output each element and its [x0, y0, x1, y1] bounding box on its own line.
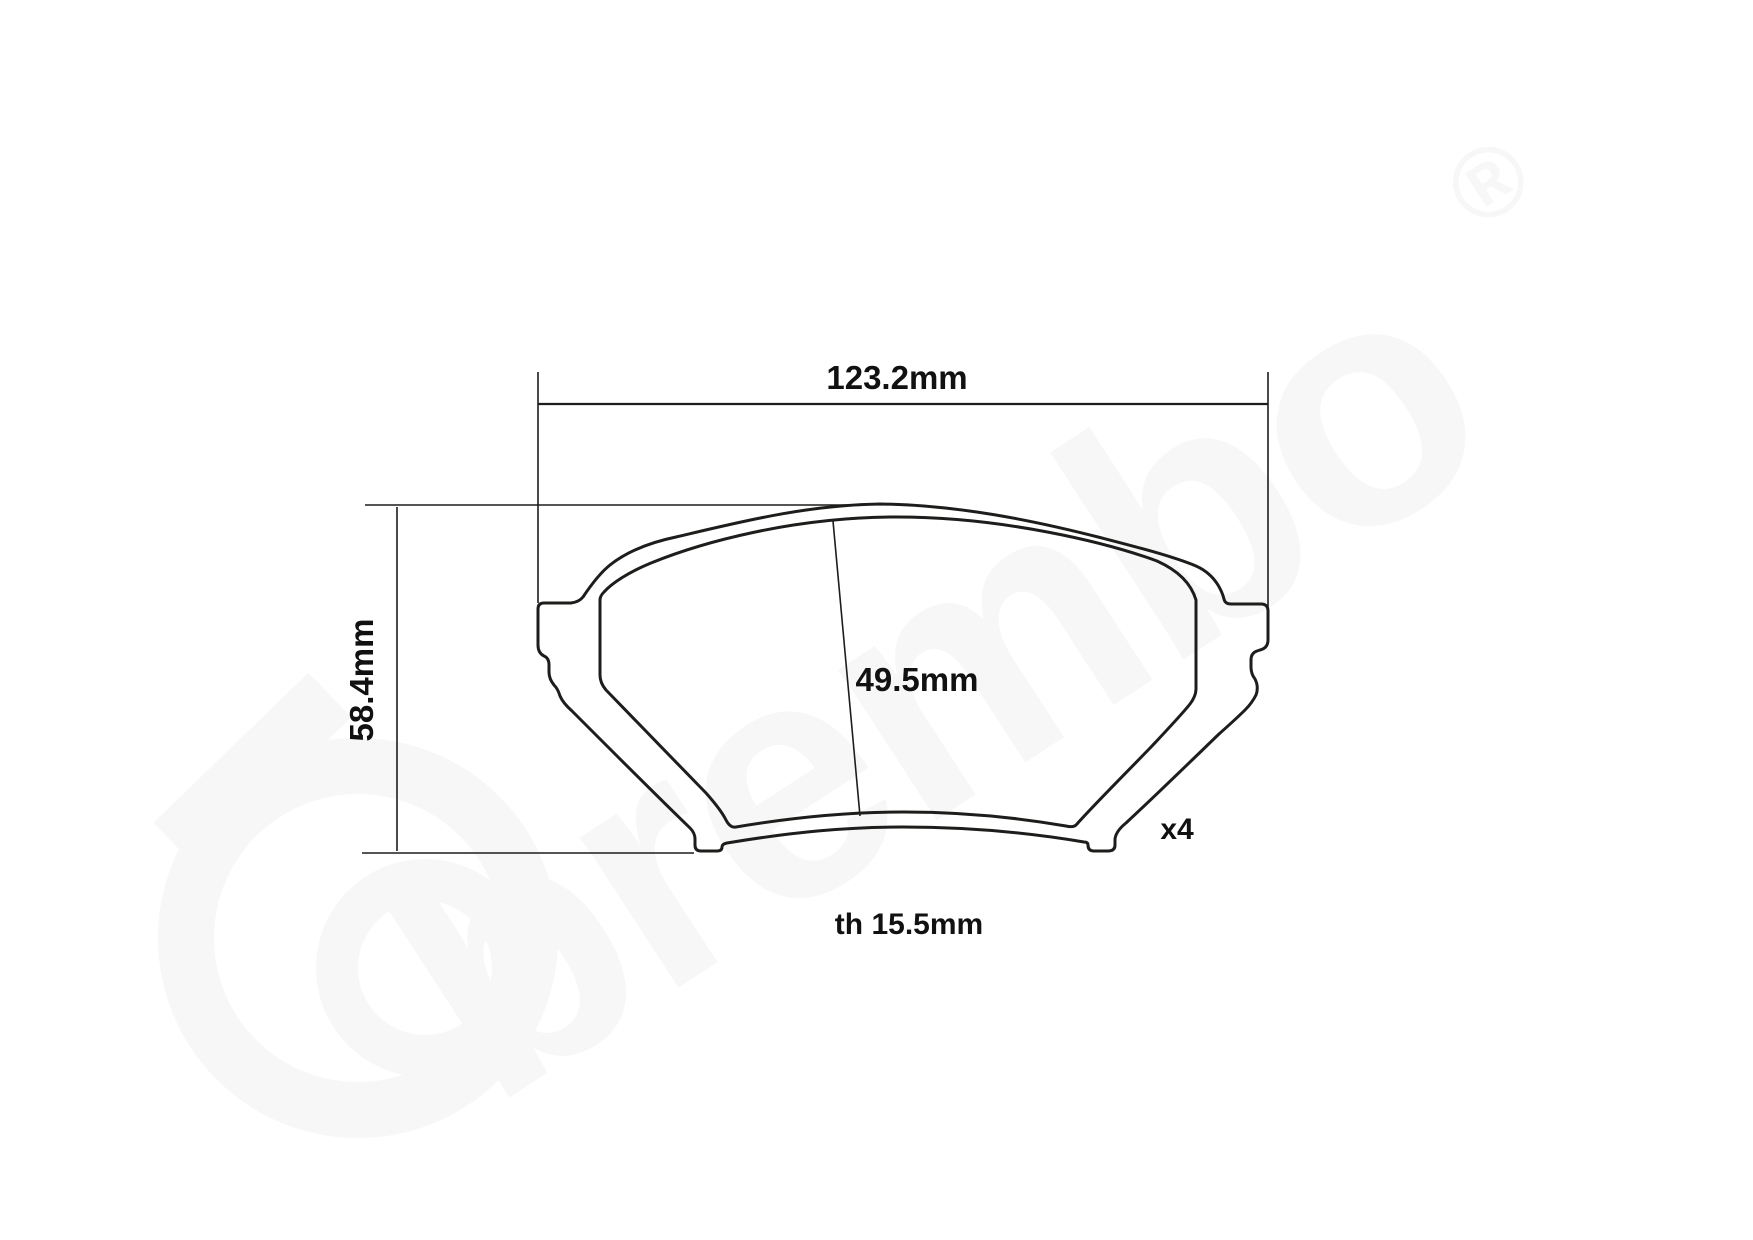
width-dimension-label: 123.2mm: [826, 359, 967, 396]
brembo-watermark: brembo ®: [175, 102, 1686, 1172]
watermark-wordmark: brembo ®: [323, 102, 1686, 1172]
brake-pad-diagram: brembo ® 123.2mm 5: [0, 0, 1753, 1240]
height-dimension-label: 58.4mm: [343, 619, 380, 742]
watermark-registered-symbol: ®: [1427, 116, 1549, 250]
thickness-label: th 15.5mm: [835, 908, 983, 941]
friction-height-dimension-label: 49.5mm: [856, 661, 979, 698]
drawing-page: brembo ® 123.2mm 5: [0, 0, 1753, 1240]
quantity-label: x4: [1160, 813, 1194, 846]
